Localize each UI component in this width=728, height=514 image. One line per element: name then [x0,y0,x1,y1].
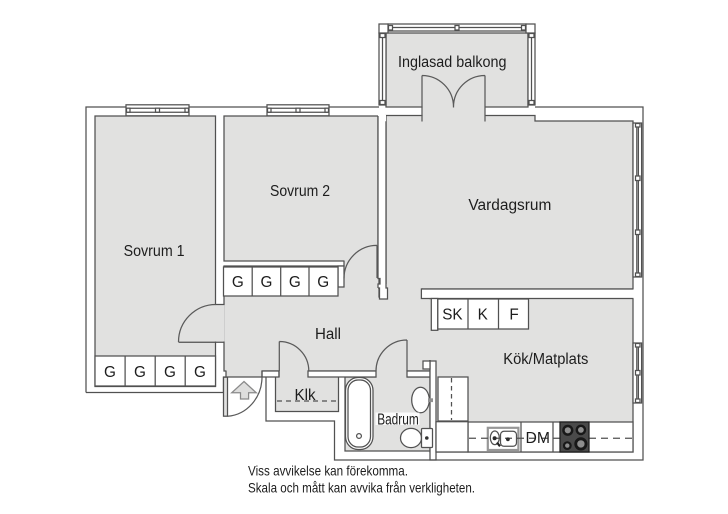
svg-text:DM: DM [526,430,551,447]
svg-text:Badrum: Badrum [377,412,419,429]
svg-text:G: G [289,274,301,291]
svg-text:G: G [194,364,206,381]
svg-text:Viss avvikelse kan förekomma.: Viss avvikelse kan förekomma. [248,463,408,479]
svg-text:G: G [164,364,176,381]
svg-text:Hall: Hall [315,326,341,343]
svg-text:Klk: Klk [295,387,316,404]
svg-text:G: G [134,364,146,381]
svg-text:Kök/Matplats: Kök/Matplats [503,351,588,368]
svg-text:G: G [317,274,329,291]
svg-text:SK: SK [442,307,463,324]
svg-text:G: G [260,274,272,291]
svg-text:Skala och mått kan avvika från: Skala och mått kan avvika från verklighe… [248,480,475,496]
svg-text:Inglasad balkong: Inglasad balkong [398,54,507,71]
svg-text:F: F [509,307,518,324]
svg-text:Sovrum 1: Sovrum 1 [124,243,185,260]
svg-text:G: G [232,274,244,291]
svg-text:K: K [478,307,489,324]
svg-text:Vardagsrum: Vardagsrum [468,197,551,214]
svg-text:G: G [104,364,116,381]
svg-text:Sovrum 2: Sovrum 2 [270,183,330,200]
